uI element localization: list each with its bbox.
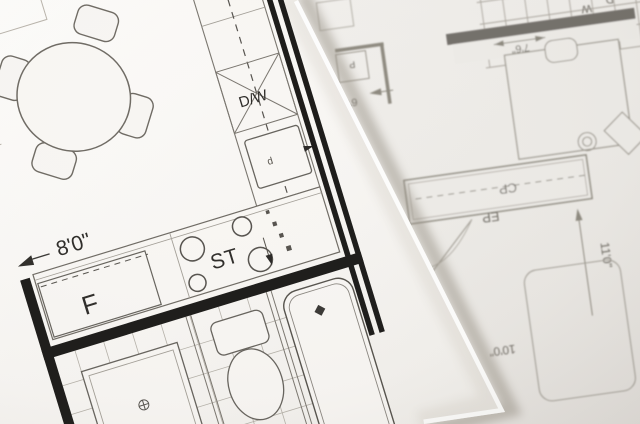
floor-plan-photo-canvas: 7'6" W D CP EP 11'0" — [0, 0, 640, 424]
vignette-overlay — [0, 0, 640, 424]
photo-of-floor-plans: 7'6" W D CP EP 11'0" — [0, 0, 640, 424]
